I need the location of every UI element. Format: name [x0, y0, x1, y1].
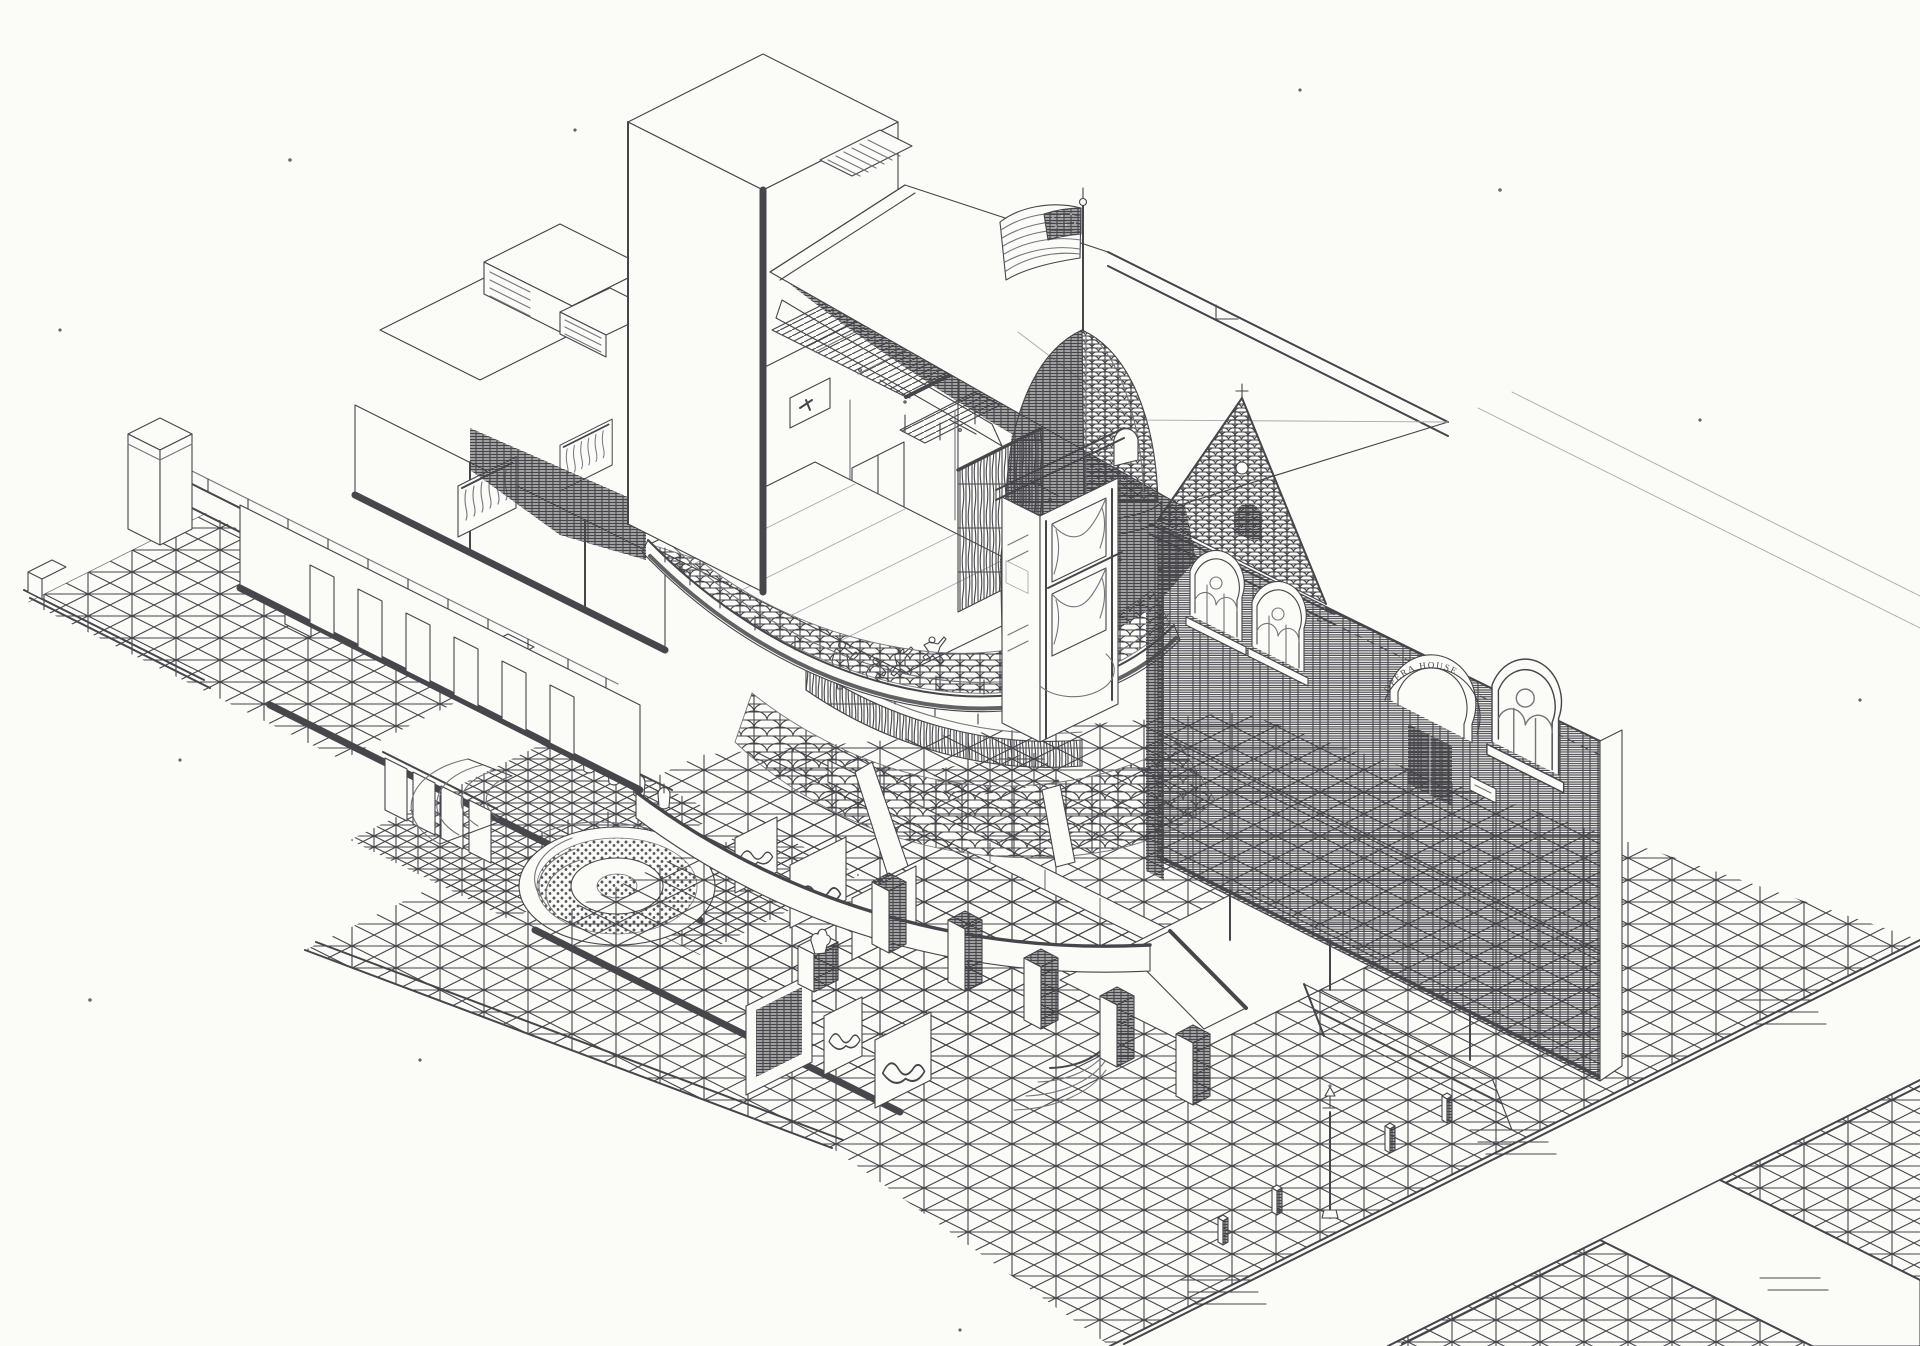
dome-dormer [1114, 429, 1138, 466]
bollard [1385, 1123, 1395, 1153]
bollard [1218, 1215, 1228, 1245]
facade-return [1600, 730, 1622, 1081]
architectural-drawing: Hand-drawn isometric cutaway pen-and-ink… [0, 0, 1920, 1346]
bollard [1442, 1093, 1452, 1123]
chimney [128, 418, 192, 545]
entry-pier [1176, 1025, 1210, 1105]
bollard [1272, 1185, 1282, 1215]
entry-pier [1100, 987, 1134, 1067]
entry-pier [872, 873, 906, 953]
distant-curbs [1478, 392, 1920, 628]
tower-left-face [628, 122, 763, 592]
entry-pier [948, 911, 982, 991]
opera-house-cutaway-svg: Hand-drawn isometric cutaway pen-and-ink… [0, 0, 1920, 1346]
entry-pier [1024, 949, 1058, 1029]
